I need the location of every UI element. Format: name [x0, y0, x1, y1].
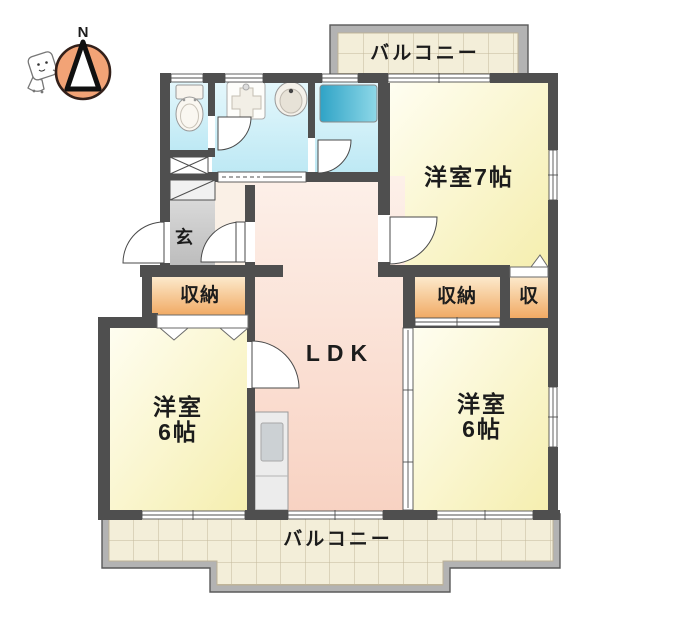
closet-left-label: 収納: [180, 286, 220, 306]
balcony-top-label: バルコニー: [370, 44, 480, 64]
hall-door-leaf: [236, 222, 245, 262]
kitchen-counter-icon: [255, 412, 288, 510]
toilet-icon: [176, 85, 203, 131]
western-room-7-label: 洋室7帖: [424, 165, 514, 189]
shoe-cabinet-box: [170, 180, 215, 200]
pipe-space-box: [170, 157, 208, 174]
western-room-6-left-label-line1: 洋室: [153, 395, 203, 419]
western-room-6-right-label-line1: 洋室: [457, 392, 507, 416]
washing-machine-icon: [227, 82, 265, 119]
washbasin-icon: [275, 82, 307, 116]
entrance-label: 玄: [175, 229, 193, 248]
ldk-label: LDK: [306, 341, 374, 365]
balcony-bottom-label: バルコニー: [283, 530, 393, 550]
north-label: N: [78, 25, 89, 41]
closet-right-label: 収納: [437, 287, 477, 307]
balcony-bottom: [102, 514, 560, 592]
entry-door-swing: [123, 222, 164, 263]
western-room-6-right-label-line2: 6帖: [462, 417, 502, 441]
closet-small-label: 収: [519, 287, 539, 307]
western-room-6-left-label-line2: 6帖: [158, 420, 198, 444]
bathtub-icon: [320, 85, 377, 122]
north-compass: [56, 42, 110, 99]
floor-plan: N バルコニー 洋室7帖 玄 収納 収納 収 LDK 洋室 6帖 洋室 6帖 バ…: [0, 0, 683, 631]
